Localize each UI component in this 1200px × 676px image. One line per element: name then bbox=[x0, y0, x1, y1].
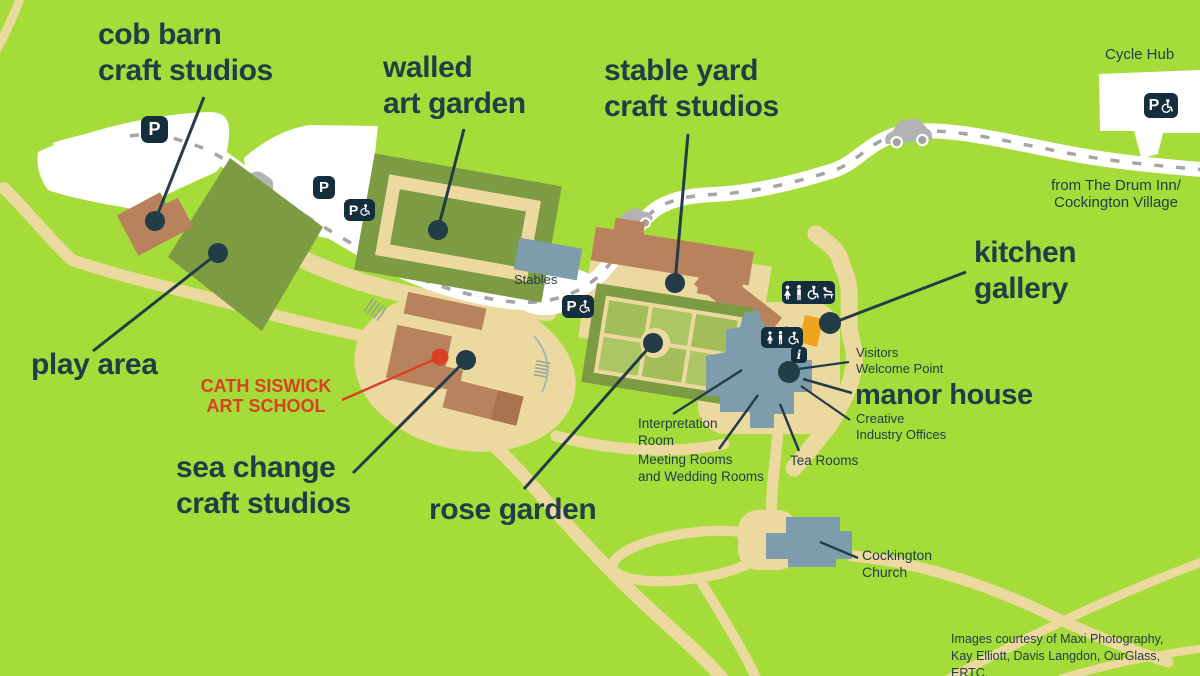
label-manor-house: manor house bbox=[855, 377, 1033, 413]
map-canvas bbox=[0, 0, 1200, 676]
label-stables: Stables bbox=[514, 271, 557, 288]
label-tea-rooms: Tea Rooms bbox=[790, 452, 858, 469]
woman-icon bbox=[783, 285, 792, 301]
label-visitors-welcome-point: Visitors Welcome Point bbox=[856, 345, 943, 377]
toilets-icon bbox=[761, 327, 803, 348]
parking-letter: P bbox=[566, 298, 576, 315]
label-cob-barn: cob barn craft studios bbox=[98, 17, 273, 89]
man-icon bbox=[795, 285, 803, 301]
baby-change-icon bbox=[822, 286, 835, 299]
accessible-parking-icon: P bbox=[1144, 93, 1178, 118]
label-walled-art-garden: walled art garden bbox=[383, 50, 526, 122]
info-icon: i bbox=[791, 347, 807, 363]
label-play-area: play area bbox=[31, 347, 158, 383]
accessible-toilet-icon bbox=[787, 331, 799, 345]
label-sea-change: sea change craft studios bbox=[176, 450, 351, 522]
accessible-parking-icon: P bbox=[344, 199, 375, 221]
info-letter: i bbox=[797, 348, 802, 362]
label-from-drum-inn: from The Drum Inn/ Cockington Village bbox=[1040, 177, 1192, 211]
accessible-toilet-icon bbox=[806, 285, 819, 300]
label-creative-industry-offices: Creative Industry Offices bbox=[856, 411, 946, 443]
label-interpretation-room: Interpretation Room bbox=[638, 415, 718, 449]
man-icon bbox=[777, 331, 784, 345]
toilets-baby-change-icon bbox=[782, 281, 835, 304]
parking-letter: P bbox=[148, 119, 160, 140]
parking-letter: P bbox=[1149, 97, 1160, 115]
parking-icon: P bbox=[141, 116, 168, 143]
label-meeting-wedding-rooms: Meeting Rooms and Wedding Rooms bbox=[638, 451, 764, 485]
parking-icon: P bbox=[313, 176, 335, 199]
label-rose-garden: rose garden bbox=[429, 492, 596, 528]
accessible-parking-icon: P bbox=[562, 295, 594, 318]
label-cockington-church: Cockington Church bbox=[862, 547, 932, 581]
image-credits: Images courtesy of Maxi Photography, Kay… bbox=[951, 631, 1200, 676]
cath-siswick-dot bbox=[432, 349, 449, 366]
wheelchair-icon bbox=[359, 203, 370, 217]
woman-icon bbox=[766, 331, 774, 345]
wheelchair-icon bbox=[1160, 98, 1173, 114]
parking-letter: P bbox=[349, 202, 358, 218]
parking-letter: P bbox=[319, 179, 329, 196]
label-kitchen-gallery: kitchen gallery bbox=[974, 235, 1076, 307]
cockington-court-map: cob barn craft studios walled art garden… bbox=[0, 0, 1200, 676]
label-stable-yard: stable yard craft studios bbox=[604, 53, 779, 125]
label-cycle-hub: Cycle Hub bbox=[1105, 46, 1174, 63]
label-cath-siswick-art-school: CATH SISWICK ART SCHOOL bbox=[186, 376, 346, 416]
wheelchair-icon bbox=[578, 299, 590, 314]
